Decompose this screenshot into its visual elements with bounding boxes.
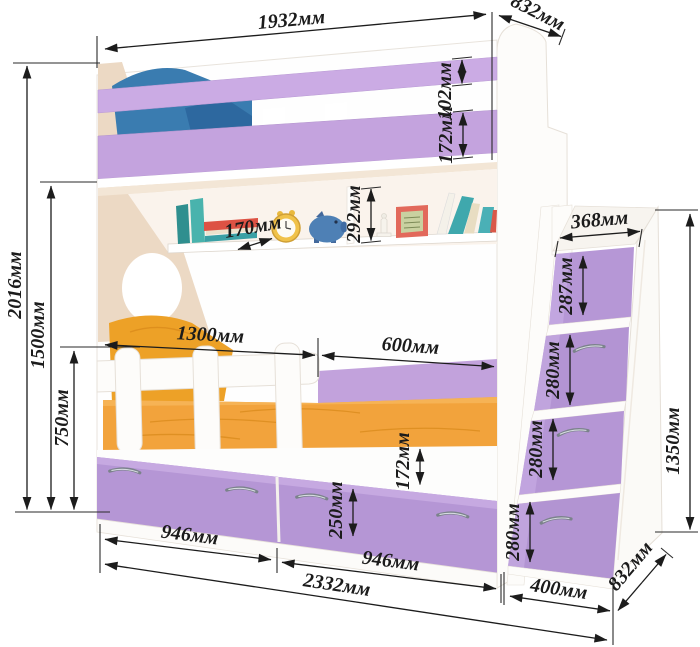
- guard-rail-post: [274, 343, 302, 462]
- dim-label-upper-bunk-height: 1500мм: [27, 301, 49, 369]
- dim-label-overall-width: 2332мм: [301, 569, 372, 601]
- dim-label-overall-height: 2016мм: [4, 251, 26, 320]
- book-icon: [190, 198, 205, 243]
- dim-label-ladder-height: 1350мм: [662, 407, 684, 475]
- dim-label-shelf-opening: 292мм: [343, 185, 365, 244]
- book-icon: [176, 204, 190, 244]
- dim-label-step-2: 280мм: [542, 341, 564, 400]
- dim-label-drawer-front: 250мм: [325, 481, 347, 540]
- dim-label-guard-rail-height: 750мм: [51, 389, 73, 447]
- drawer-divider: [277, 477, 279, 542]
- bunk-bed-dimension-diagram: 1932мм 832мм 102мм 172мм 292мм 170мм 201…: [0, 0, 700, 647]
- photo-frame-icon: [396, 205, 428, 238]
- headboard-oval-cutout: [122, 253, 182, 323]
- dim-label-lower-bed-section: 1300мм: [176, 322, 245, 348]
- guard-rail-post: [115, 348, 143, 454]
- dim-label-base-band: 172мм: [392, 432, 414, 490]
- dim-label-second-rail: 172мм: [435, 106, 457, 164]
- dim-label-step-4: 280мм: [502, 503, 524, 562]
- guard-rail-post: [193, 346, 221, 458]
- dim-label-step-1: 287мм: [555, 257, 577, 316]
- dim-label-foot-section: 600мм: [381, 333, 440, 359]
- dim-label-step-3: 280мм: [525, 420, 547, 479]
- diagram-canvas: 1932мм 832мм 102мм 172мм 292мм 170мм 201…: [0, 0, 700, 647]
- extension-line: [661, 548, 673, 558]
